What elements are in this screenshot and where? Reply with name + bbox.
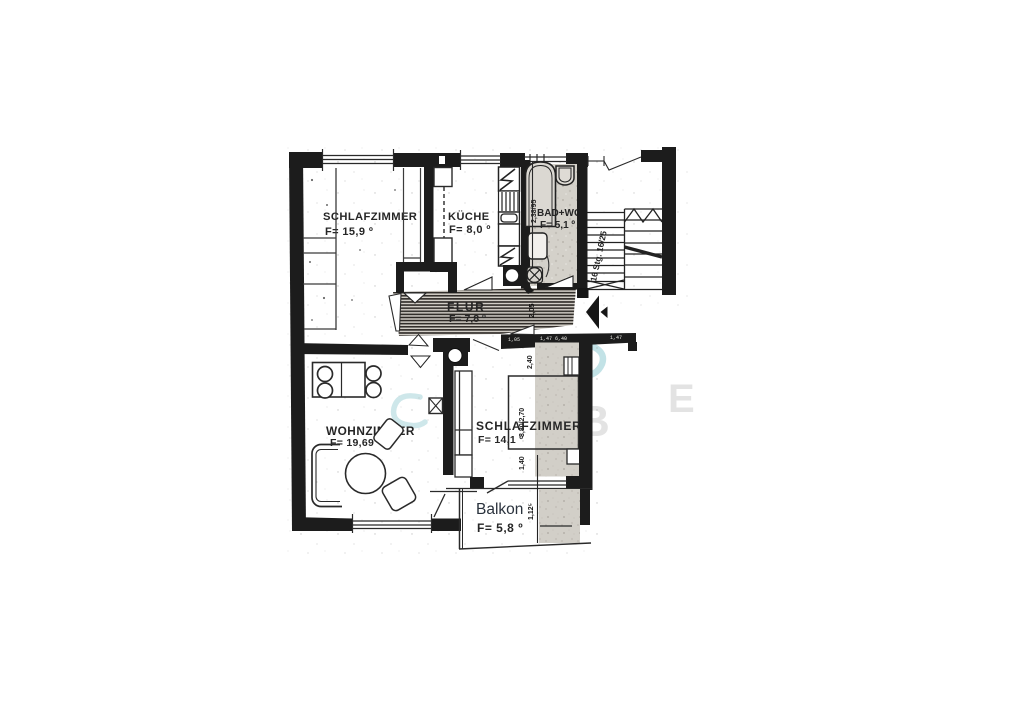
svg-text:BAD+WC: BAD+WC xyxy=(537,208,581,219)
svg-text:F= 15,9 º: F= 15,9 º xyxy=(325,226,373,238)
svg-text:1,05: 1,05 xyxy=(508,337,520,343)
svg-text:1,47: 1,47 xyxy=(610,335,622,341)
svg-text:2,38/95: 2,38/95 xyxy=(531,200,538,223)
svg-text:F= 8,0 º: F= 8,0 º xyxy=(449,224,491,236)
svg-text:F= 5,8 º: F= 5,8 º xyxy=(477,521,523,535)
svg-text:2,40: 2,40 xyxy=(527,355,534,369)
svg-text:3,80/2,70: 3,80/2,70 xyxy=(519,408,526,437)
svg-text:1,12⁵: 1,12⁵ xyxy=(528,503,535,520)
svg-text:1,40: 1,40 xyxy=(519,456,526,470)
svg-text:E: E xyxy=(668,377,695,421)
svg-text:SCHLAFZIMMER: SCHLAFZIMMER xyxy=(476,419,582,433)
svg-text:2,05: 2,05 xyxy=(527,303,536,318)
svg-text:1,47 6,40: 1,47 6,40 xyxy=(540,336,567,342)
svg-text:Balkon: Balkon xyxy=(476,501,523,518)
svg-text:KÜCHE: KÜCHE xyxy=(448,210,490,223)
svg-text:F= 19,69: F= 19,69 xyxy=(330,437,374,449)
svg-text:F= 7,8 º: F= 7,8 º xyxy=(449,313,486,325)
svg-text:F= 14,1 º: F= 14,1 º xyxy=(478,434,523,446)
svg-text:F= 5,1 º: F= 5,1 º xyxy=(540,220,575,231)
svg-text:FLUR: FLUR xyxy=(447,300,485,314)
